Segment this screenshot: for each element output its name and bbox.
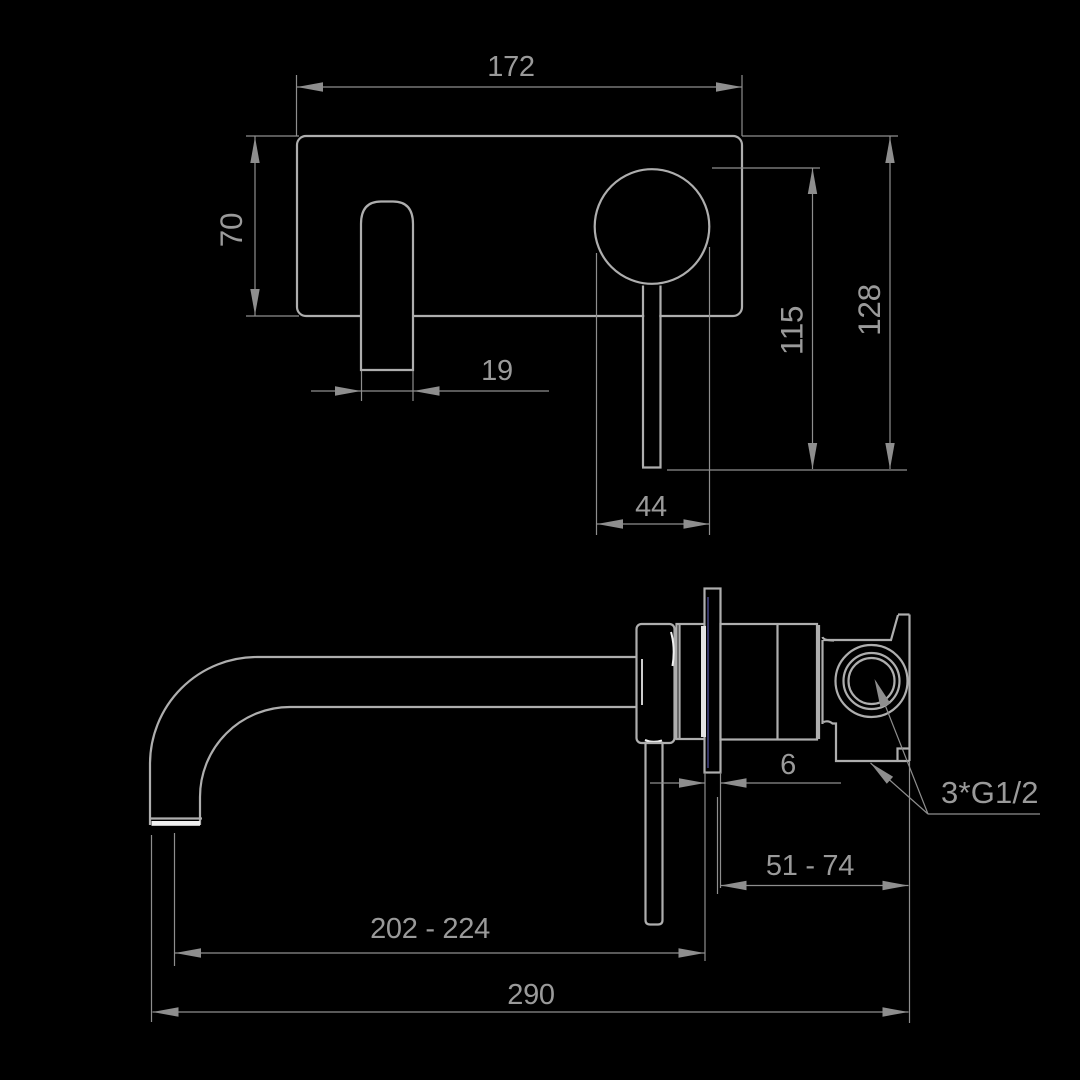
svg-text:128: 128 [851,284,887,336]
svg-text:51 - 74: 51 - 74 [766,850,854,882]
svg-text:44: 44 [635,491,667,523]
svg-text:3*G1/2: 3*G1/2 [941,775,1039,810]
svg-text:202 - 224: 202 - 224 [370,913,490,945]
svg-text:115: 115 [774,306,810,355]
svg-text:70: 70 [213,213,249,247]
svg-text:19: 19 [481,355,513,387]
svg-text:6: 6 [780,749,796,781]
svg-text:290: 290 [507,979,555,1011]
svg-text:172: 172 [487,51,535,83]
